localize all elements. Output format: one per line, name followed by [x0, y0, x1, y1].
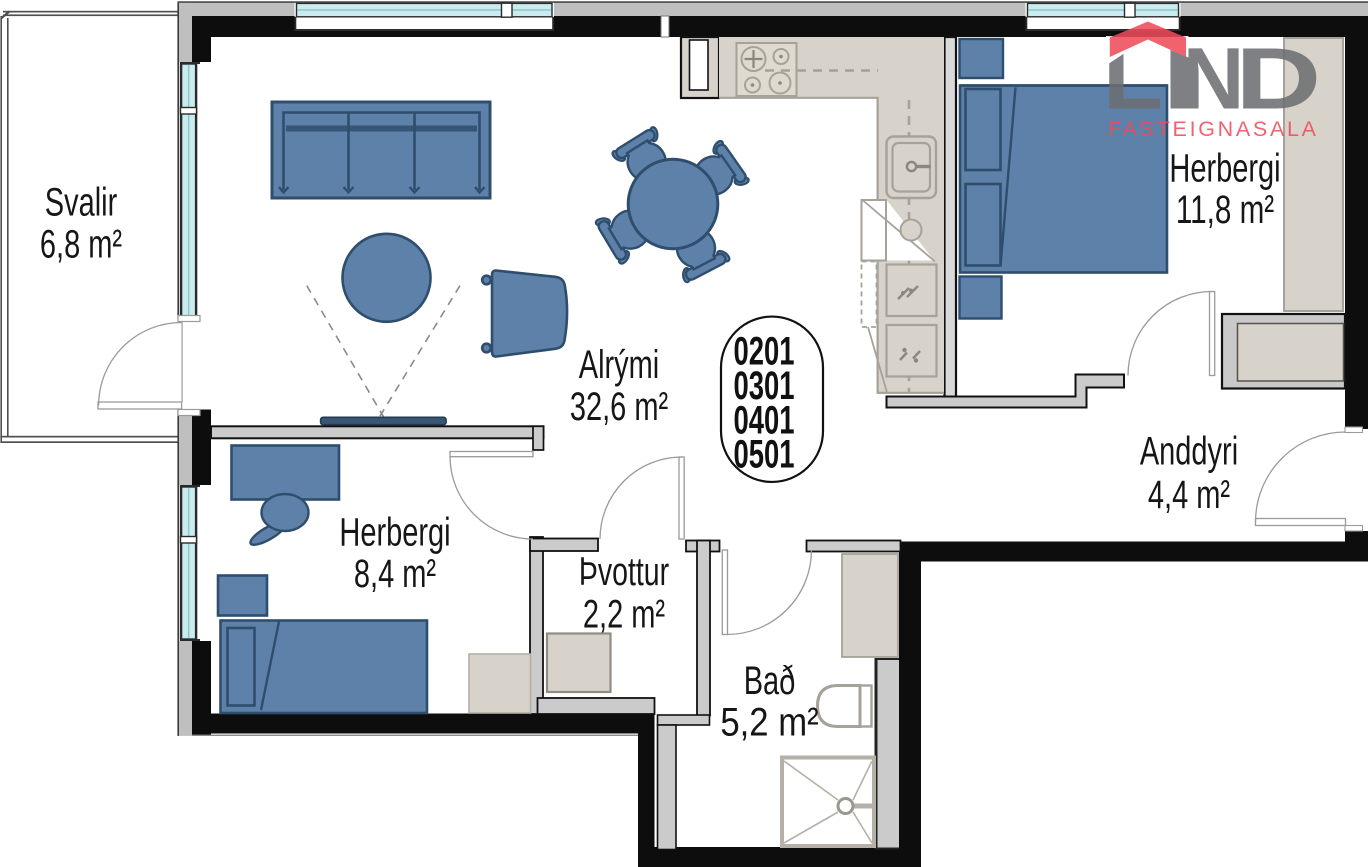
svg-text:5,2 m²: 5,2 m² — [720, 701, 818, 745]
svg-text:0501: 0501 — [734, 433, 795, 477]
svg-text:Alrými: Alrými — [579, 343, 660, 387]
svg-text:4,4 m²: 4,4 m² — [1148, 473, 1230, 517]
svg-text:Bað: Bað — [744, 659, 796, 703]
svg-text:8,4 m²: 8,4 m² — [354, 552, 436, 596]
svg-text:Svalir: Svalir — [45, 181, 118, 225]
svg-text:Anddyri: Anddyri — [1140, 430, 1238, 474]
svg-text:32,6 m²: 32,6 m² — [570, 385, 668, 429]
svg-text:11,8 m²: 11,8 m² — [1176, 188, 1274, 232]
svg-text:Herbergi: Herbergi — [339, 511, 450, 555]
svg-text:D: D — [1235, 31, 1321, 128]
svg-text:Þvottur: Þvottur — [579, 550, 669, 594]
svg-text:6,8 m²: 6,8 m² — [40, 223, 122, 267]
svg-text:2,2 m²: 2,2 m² — [583, 593, 665, 637]
svg-text:Herbergi: Herbergi — [1169, 147, 1280, 191]
